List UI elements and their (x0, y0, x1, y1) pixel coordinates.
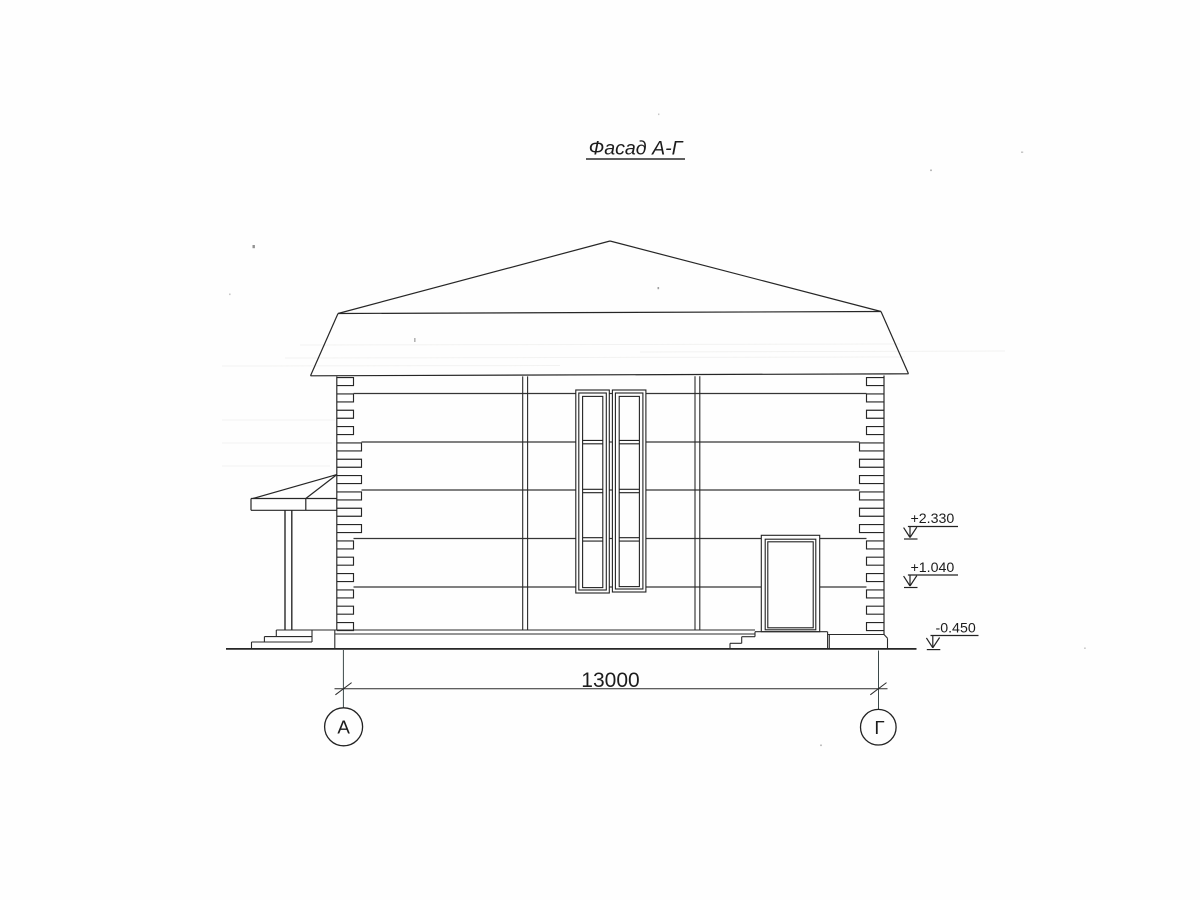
svg-text:А: А (337, 717, 350, 738)
svg-text:+1.040: +1.040 (911, 560, 955, 576)
svg-text:-0.450: -0.450 (936, 620, 976, 636)
svg-text:13000: 13000 (581, 669, 639, 692)
svg-text:+2.330: +2.330 (911, 511, 955, 527)
svg-text:Фасад А-Г: Фасад А-Г (589, 138, 684, 160)
svg-text:Г: Г (874, 717, 884, 738)
